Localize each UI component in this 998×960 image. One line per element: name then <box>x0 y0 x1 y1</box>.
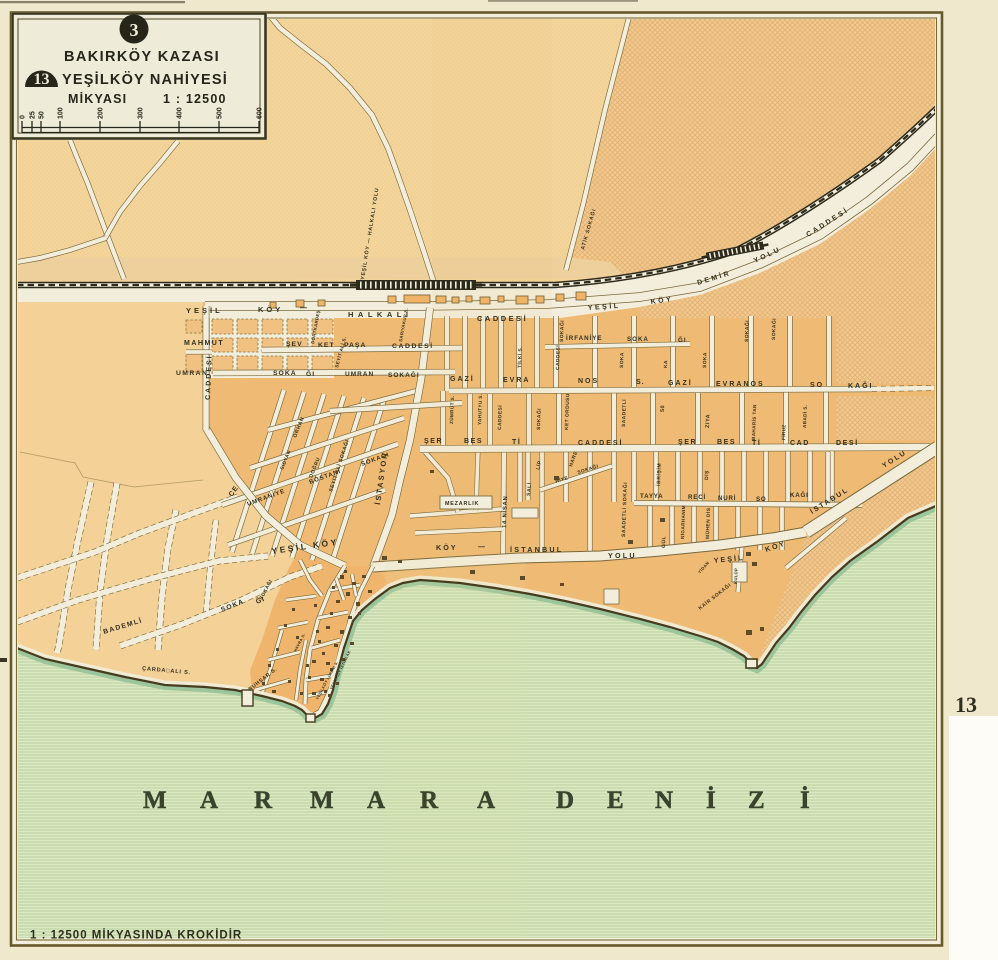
svg-text:SALİ: SALİ <box>525 482 533 496</box>
svg-text:NURİ: NURİ <box>718 495 736 502</box>
svg-text:PAŞA: PAŞA <box>344 342 366 349</box>
svg-text:SOKA: SOKA <box>619 352 626 368</box>
svg-text:BAKIRKÖY KAZASI: BAKIRKÖY KAZASI <box>64 48 220 65</box>
svg-text:A: A <box>367 787 385 814</box>
svg-text:RECİ: RECİ <box>688 494 706 501</box>
svg-text:R: R <box>420 787 439 814</box>
svg-text:YEŞİLKÖY NAHİYESİ: YEŞİLKÖY NAHİYESİ <box>62 71 228 88</box>
svg-text:500: 500 <box>217 107 224 119</box>
svg-text:SO: SO <box>810 382 824 389</box>
svg-text:300: 300 <box>138 107 145 119</box>
svg-text:13: 13 <box>955 692 977 717</box>
svg-text:CADDESİ: CADDESİ <box>392 342 434 350</box>
svg-text:KET: KET <box>318 342 335 349</box>
svg-text:BES: BES <box>464 438 483 445</box>
svg-text:M: M <box>143 787 167 814</box>
svg-text:200: 200 <box>98 107 105 119</box>
svg-text:50: 50 <box>39 111 46 119</box>
svg-text:KÖY: KÖY <box>436 543 458 552</box>
svg-text:400: 400 <box>177 107 184 119</box>
svg-text:NİGARHANIM: NİGARHANIM <box>679 505 686 539</box>
svg-text:ŞER: ŞER <box>424 438 443 445</box>
svg-text:KÖY: KÖY <box>258 305 283 314</box>
svg-text:D: D <box>556 787 574 814</box>
svg-text:25: 25 <box>30 111 37 119</box>
svg-text:100: 100 <box>58 107 65 119</box>
svg-text:A: A <box>477 787 495 814</box>
svg-text:YEŞİL: YEŞİL <box>186 306 223 315</box>
svg-text:MİKYASI: MİKYASI <box>68 91 127 106</box>
svg-text:ĞI: ĞI <box>678 336 687 344</box>
svg-text:MAHMUT: MAHMUT <box>184 340 224 347</box>
svg-text:İBRİŞİM: İBRİŞİM <box>655 463 663 486</box>
svg-text:ŞER: ŞER <box>678 439 697 446</box>
svg-text:ZIYA: ZIYA <box>705 414 711 428</box>
svg-text:GAZİ: GAZİ <box>450 375 475 383</box>
svg-text:R: R <box>254 787 273 814</box>
svg-text:CAD: CAD <box>790 440 810 447</box>
svg-text:CADDESİ: CADDESİ <box>578 439 624 447</box>
svg-text:600: 600 <box>257 107 264 119</box>
svg-text:—: — <box>300 305 308 312</box>
svg-text:SOKA: SOKA <box>702 352 709 368</box>
svg-text:NOS: NOS <box>578 378 599 385</box>
svg-text:S.: S. <box>636 379 645 386</box>
svg-text:GAZİ: GAZİ <box>668 379 693 387</box>
svg-text:GÜL: GÜL <box>660 536 667 548</box>
svg-text:E: E <box>607 787 624 814</box>
svg-text:M: M <box>310 787 334 814</box>
svg-text:UMRAN: UMRAN <box>176 370 208 377</box>
svg-text:SOKA: SOKA <box>273 370 297 377</box>
svg-text:TAYYA: TAYYA <box>640 493 663 500</box>
svg-text:İ: İ <box>706 786 716 814</box>
svg-text:Tİ: Tİ <box>512 438 521 446</box>
svg-text:KAĞI: KAĞI <box>790 491 809 499</box>
svg-text:1 : 12500: 1 : 12500 <box>163 92 227 106</box>
svg-text:KULÜP: KULÜP <box>733 568 739 584</box>
svg-text:DİŞ: DİŞ <box>703 470 710 480</box>
svg-text:SOKAĞI: SOKAĞI <box>388 370 420 379</box>
svg-text:ĞI: ĞI <box>306 369 315 378</box>
svg-text:KAĞI: KAĞI <box>848 381 874 390</box>
svg-text:14 NİSAN: 14 NİSAN <box>501 495 509 528</box>
svg-text:A: A <box>200 787 218 814</box>
svg-text:SO: SO <box>756 496 767 503</box>
svg-text:İ: İ <box>800 786 810 814</box>
svg-text:EVRA: EVRA <box>503 377 530 384</box>
svg-text:BES: BES <box>717 439 736 446</box>
svg-text:Z: Z <box>748 787 765 814</box>
svg-text:MEZARLIK: MEZARLIK <box>445 501 479 507</box>
svg-text:3: 3 <box>130 20 139 40</box>
svg-text:UMRAN: UMRAN <box>345 371 374 378</box>
svg-text:0: 0 <box>20 115 27 119</box>
svg-text:EVRANOS: EVRANOS <box>716 381 765 388</box>
svg-text:N: N <box>655 787 673 814</box>
svg-text:YOLU: YOLU <box>608 551 637 560</box>
svg-text:ABADİ S.: ABADİ S. <box>801 404 808 428</box>
svg-text:İSTANBUL: İSTANBUL <box>510 545 563 554</box>
svg-text:CADDESİ: CADDESİ <box>477 314 528 323</box>
svg-text:—: — <box>478 544 486 551</box>
svg-text:KA: KA <box>663 360 669 368</box>
svg-text:50: 50 <box>660 405 666 412</box>
svg-text:ŞEV: ŞEV <box>286 341 303 348</box>
svg-text:FİRUZ: FİRUZ <box>780 424 787 440</box>
svg-text:DESİ: DESİ <box>836 439 859 447</box>
svg-text:İRFANİYE: İRFANİYE <box>566 335 603 342</box>
svg-text:ZÜMRÜT S.: ZÜMRÜT S. <box>448 395 455 424</box>
svg-text:BAHARİS TAN: BAHARİS TAN <box>750 404 757 440</box>
svg-text:CADDESİ: CADDESİ <box>204 354 214 400</box>
svg-text:13: 13 <box>34 71 50 88</box>
svg-text:SOKA: SOKA <box>627 336 649 343</box>
